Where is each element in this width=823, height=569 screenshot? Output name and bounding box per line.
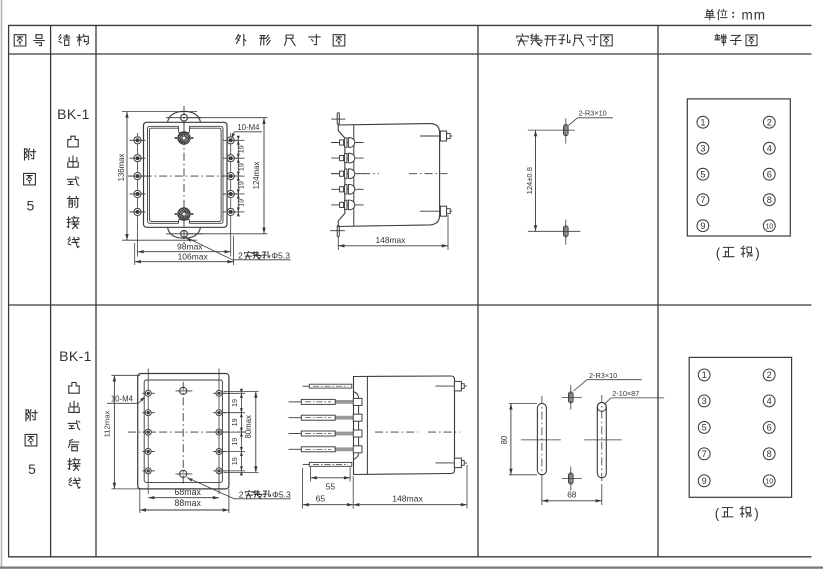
svg-text:5: 5 [27, 199, 35, 214]
svg-text:148max: 148max [376, 235, 407, 245]
svg-text:3: 3 [702, 396, 707, 406]
svg-text:6: 6 [767, 423, 772, 433]
svg-text:): ) [755, 246, 760, 261]
svg-text:55: 55 [326, 481, 336, 491]
svg-text:19: 19 [236, 163, 245, 171]
svg-text:2: 2 [239, 490, 244, 500]
svg-text:65: 65 [316, 493, 326, 503]
svg-text:10: 10 [765, 223, 773, 230]
svg-text:2-R3×10: 2-R3×10 [579, 109, 607, 118]
svg-text:mm: mm [742, 7, 767, 22]
svg-text:4: 4 [767, 396, 772, 406]
svg-text:6: 6 [767, 170, 772, 180]
svg-text:3: 3 [700, 144, 705, 154]
svg-text:(: ( [715, 506, 720, 521]
svg-text:148max: 148max [392, 493, 423, 503]
svg-text:8: 8 [767, 195, 772, 205]
svg-text:106max: 106max [178, 251, 209, 261]
svg-text:10-M4: 10-M4 [237, 123, 260, 132]
svg-text:4: 4 [767, 144, 772, 154]
svg-text:Φ5.3: Φ5.3 [272, 490, 291, 500]
svg-text:BK-1: BK-1 [59, 348, 92, 364]
svg-text:112max: 112max [103, 410, 112, 437]
svg-text:10-M4: 10-M4 [111, 395, 134, 404]
svg-text:2-10×87: 2-10×87 [612, 389, 639, 398]
svg-text:9: 9 [702, 476, 707, 486]
svg-text:5: 5 [28, 462, 36, 477]
svg-text:1: 1 [702, 370, 707, 380]
svg-text:Φ5.3: Φ5.3 [271, 251, 290, 261]
svg-text:80max: 80max [244, 415, 253, 439]
svg-text:1: 1 [700, 118, 705, 128]
svg-text:124±0.8: 124±0.8 [525, 167, 534, 194]
svg-text:(: ( [716, 246, 721, 261]
svg-text:19: 19 [236, 199, 245, 207]
svg-text:19: 19 [236, 181, 245, 189]
svg-text:): ) [754, 506, 759, 521]
svg-text:19: 19 [230, 438, 239, 446]
svg-text:124max: 124max [252, 162, 261, 190]
svg-text:19: 19 [230, 457, 239, 465]
svg-text:BK-1: BK-1 [57, 106, 90, 122]
svg-text:2: 2 [767, 118, 772, 128]
svg-text:5: 5 [700, 170, 705, 180]
svg-text:10: 10 [765, 479, 773, 486]
svg-text:7: 7 [702, 449, 707, 459]
svg-text:9: 9 [700, 221, 705, 231]
svg-text:7: 7 [700, 195, 705, 205]
svg-text:5: 5 [702, 423, 707, 433]
svg-text:136max: 136max [117, 154, 126, 182]
svg-text:19: 19 [236, 145, 245, 153]
svg-text:2: 2 [767, 370, 772, 380]
svg-text:88max: 88max [174, 498, 201, 508]
svg-text:19: 19 [230, 418, 239, 426]
svg-text:68max: 68max [174, 487, 201, 497]
svg-text:80: 80 [500, 435, 509, 444]
svg-text:2: 2 [238, 251, 243, 261]
svg-text:2-R3×10: 2-R3×10 [589, 371, 617, 380]
svg-text:19: 19 [230, 399, 239, 407]
svg-text:8: 8 [767, 449, 772, 459]
svg-text:98max: 98max [177, 241, 203, 251]
svg-text:68: 68 [567, 490, 577, 499]
